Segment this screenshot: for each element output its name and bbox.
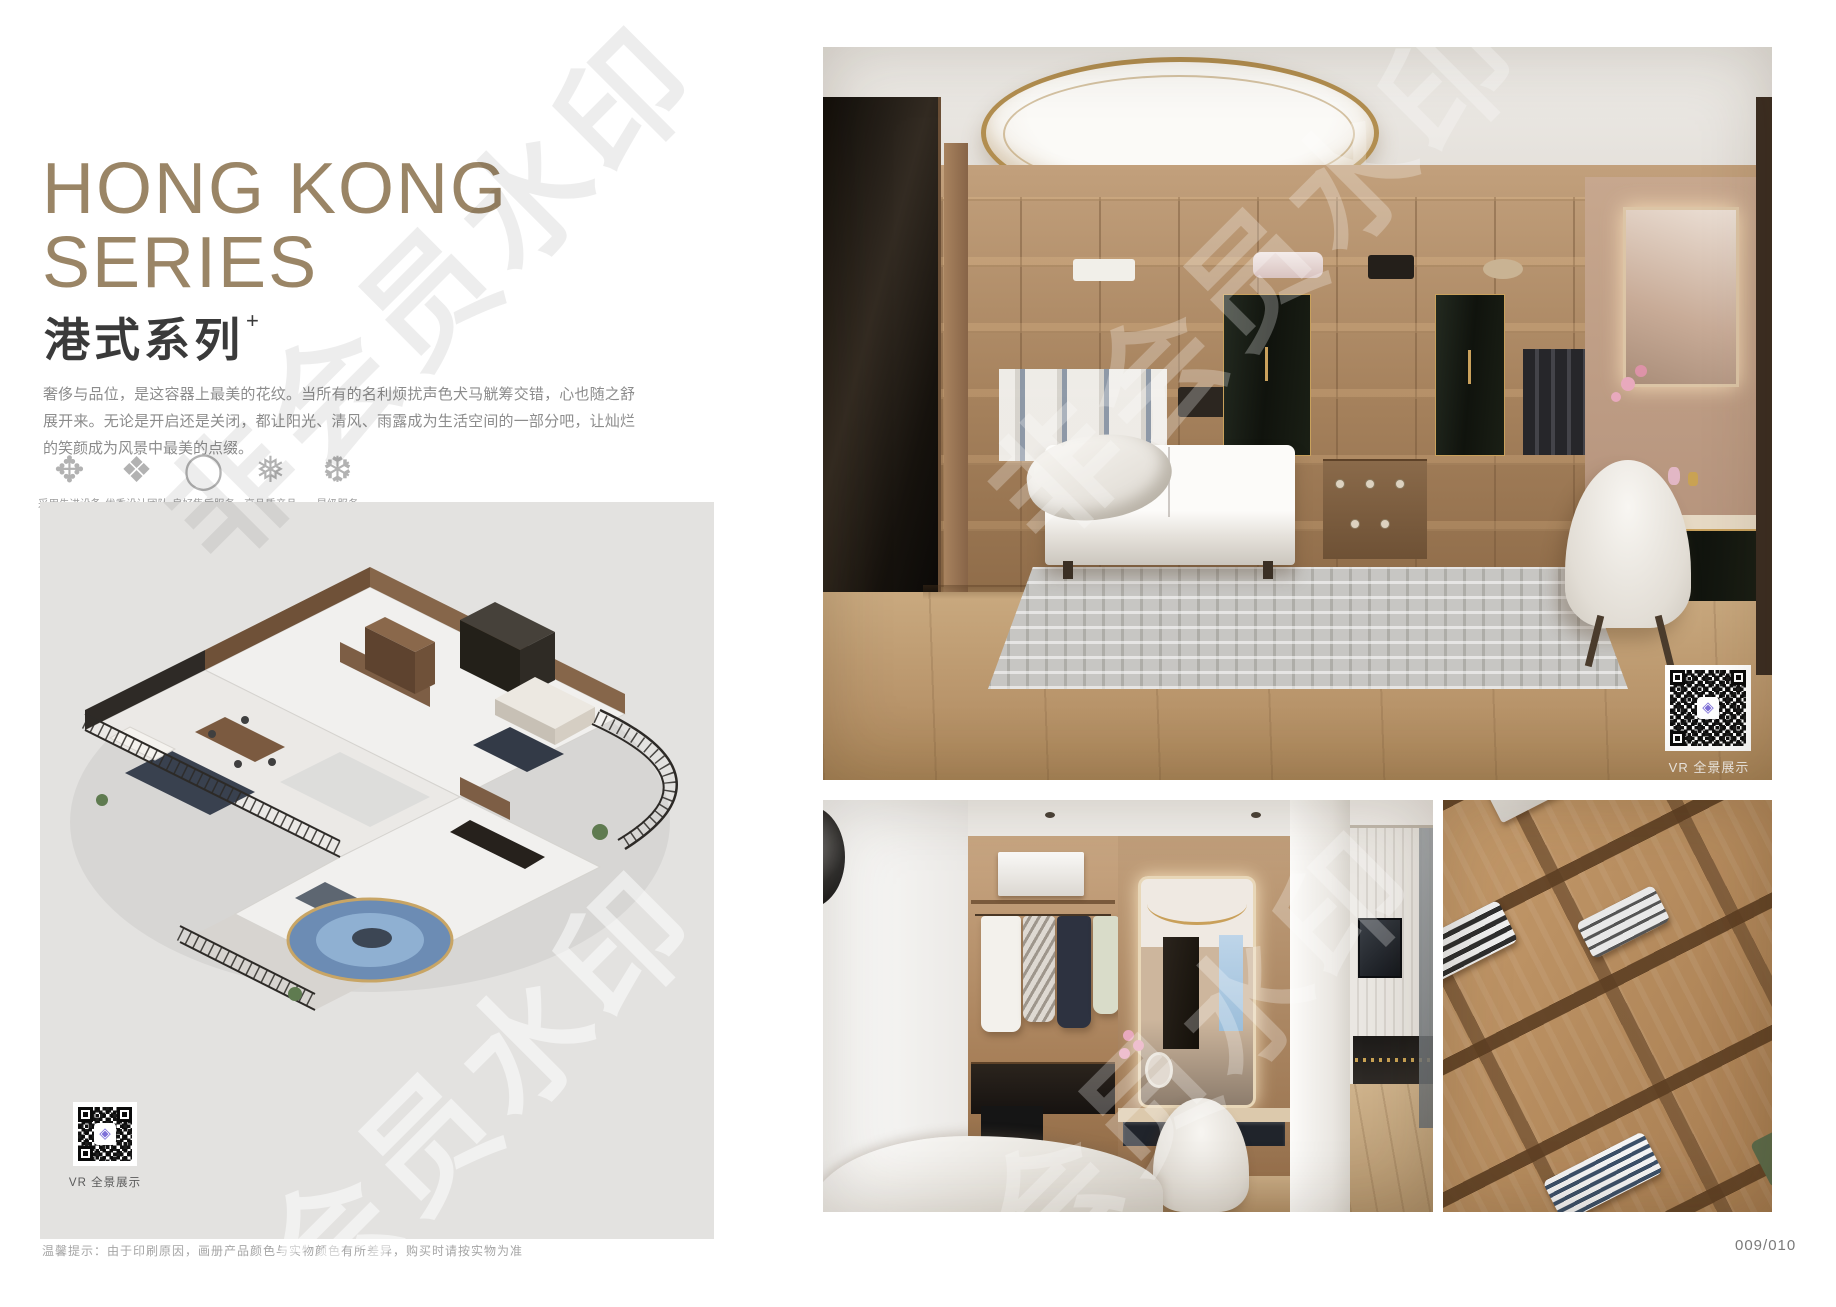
striped-sweater-stack bbox=[1443, 900, 1518, 985]
pink-flowers bbox=[1611, 392, 1621, 402]
series-title-english: HONG KONG SERIES bbox=[42, 152, 508, 300]
door-handle bbox=[1265, 347, 1268, 381]
drawer-knob bbox=[1350, 519, 1360, 529]
bench-leg bbox=[1263, 561, 1273, 579]
shelf-closeup-photo bbox=[1443, 800, 1772, 1212]
dressing-room-photo bbox=[823, 800, 1433, 1212]
green-item bbox=[1750, 1116, 1772, 1189]
floorplan-qr-code: ◈ bbox=[73, 1102, 137, 1166]
door-handle bbox=[1468, 350, 1471, 384]
mirror-reflection-window bbox=[1219, 935, 1243, 1031]
drawer-knob bbox=[1380, 519, 1390, 529]
qr-finder-icon bbox=[1731, 670, 1746, 685]
ceiling-spotlight bbox=[1251, 812, 1261, 818]
white-column bbox=[1290, 800, 1350, 1212]
area-rug bbox=[988, 567, 1628, 689]
mirror-reflection-ceiling bbox=[1147, 883, 1247, 925]
white-dress bbox=[981, 916, 1021, 1032]
qr-finder-icon bbox=[78, 1107, 93, 1122]
hat bbox=[1483, 259, 1523, 279]
vr-panorama-caption: VR 全景展示 bbox=[62, 1174, 148, 1190]
patterned-garment bbox=[1023, 916, 1055, 1022]
qr-finder-icon bbox=[1670, 670, 1685, 685]
glass-partition bbox=[1419, 828, 1433, 1128]
qr-pattern: ◈ bbox=[78, 1107, 132, 1161]
folded-clothes bbox=[1073, 259, 1135, 281]
adjacent-room-ceiling bbox=[1350, 800, 1433, 828]
perfume-bottles bbox=[1688, 472, 1698, 486]
series-title-chinese: 港式系列+ bbox=[44, 304, 263, 370]
snowflake-icon: ❅ bbox=[237, 450, 304, 490]
series-title-line2: SERIES bbox=[42, 223, 318, 303]
qr-finder-icon bbox=[117, 1107, 132, 1122]
vr-panorama-caption: VR 全景展示 bbox=[1659, 757, 1759, 776]
closet-shelf bbox=[971, 900, 1115, 904]
drawer-knob bbox=[1335, 479, 1345, 489]
catalog-page: HONG KONG SERIES 港式系列+ 奢侈与品位，是这容器上最美的花纹。… bbox=[0, 0, 1836, 1307]
ring-icon: ◯ bbox=[170, 450, 237, 490]
navy-garment bbox=[1057, 916, 1091, 1028]
diagonal-shelving bbox=[1443, 800, 1772, 1212]
oval-photo-frame bbox=[1145, 1052, 1173, 1088]
page-number: 009/010 bbox=[1735, 1237, 1796, 1254]
drawer-knob bbox=[1365, 479, 1375, 489]
perfume-bottles bbox=[1668, 467, 1680, 485]
qr-finder-icon bbox=[78, 1146, 93, 1161]
floorplan-figure: ◈ VR 全景展示 bbox=[40, 502, 714, 1239]
floorplan-illustration bbox=[40, 502, 714, 1239]
pink-flowers bbox=[1635, 365, 1647, 377]
center-drawers bbox=[1323, 459, 1427, 559]
mirror-edge-panel bbox=[1756, 97, 1772, 675]
striped-sweater-stack bbox=[1543, 1131, 1664, 1212]
handbag bbox=[1368, 255, 1414, 279]
vr-cube-icon: ◈ bbox=[94, 1123, 116, 1145]
ceiling-spotlight bbox=[1045, 812, 1055, 818]
qr-finder-icon bbox=[1670, 731, 1685, 746]
qr-pattern: ◈ bbox=[1670, 670, 1746, 746]
striped-sweater-stack bbox=[1576, 885, 1671, 960]
light-green-top bbox=[1093, 916, 1119, 1014]
print-disclaimer: 温馨提示：由于印刷原因，画册产品颜色与实物颜色有所差异，购买时请按实物为准 bbox=[42, 1242, 523, 1259]
panorama-qr-code: ◈ bbox=[1665, 665, 1751, 751]
wall-tv bbox=[1358, 918, 1402, 978]
storage-box bbox=[1478, 800, 1608, 823]
mirror-reflection-wardrobe bbox=[1163, 937, 1199, 1049]
plus-superscript: + bbox=[246, 308, 263, 333]
ornament-flower-icon: ✥ bbox=[36, 450, 103, 490]
wood-pillar bbox=[944, 143, 968, 643]
pink-flowers bbox=[1621, 377, 1635, 391]
walk-in-closet-photo: ◈ VR 全景展示 bbox=[823, 47, 1772, 780]
storage-box bbox=[998, 852, 1084, 896]
floorplan-round-rug bbox=[288, 899, 452, 981]
vr-cube-icon: ◈ bbox=[1697, 697, 1719, 719]
ornament-diamond-icon: ❖ bbox=[103, 450, 170, 490]
bench-leg bbox=[1063, 561, 1073, 579]
drawer-knob bbox=[1395, 479, 1405, 489]
series-title-line1: HONG KONG bbox=[42, 149, 508, 229]
star-snowflake-icon: ❆ bbox=[304, 450, 371, 490]
pillows bbox=[1253, 252, 1323, 278]
vanity-mirror bbox=[1623, 207, 1739, 387]
